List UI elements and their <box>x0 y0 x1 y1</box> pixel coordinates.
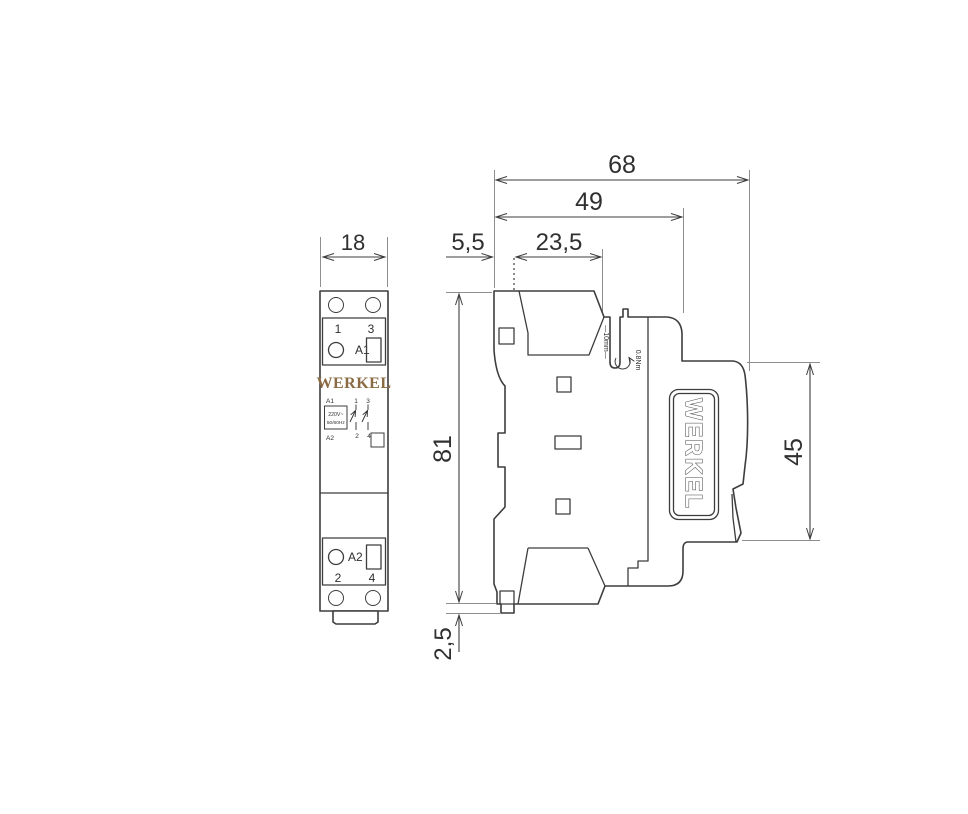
strip-length-marking: —10mm— <box>602 325 609 358</box>
terminal-label-3: 3 <box>368 322 375 336</box>
terminal-label-1: 1 <box>335 322 342 336</box>
dim-label-18: 18 <box>341 230 365 255</box>
schematic-pole2-label: 2 <box>355 433 359 440</box>
dim-label-55: 5,5 <box>451 229 484 256</box>
coil-voltage: 220V~ <box>328 412 343 418</box>
coil-label-a1: A1 <box>355 343 370 357</box>
terminal-label-2: 2 <box>335 571 342 585</box>
dim-label-49: 49 <box>575 188 603 216</box>
coil-label-a2: A2 <box>348 550 363 564</box>
dim-rail-45: 45 <box>742 363 820 541</box>
din-clip-tab <box>333 611 378 624</box>
contactor-dimension-drawing: 18 1 3 A1 WERKEL A1 220V~ 50/60Hz A2 1 3 <box>0 0 968 814</box>
front-view: 18 1 3 A1 WERKEL A1 220V~ 50/60Hz A2 1 3 <box>316 230 391 624</box>
module-side-outline <box>494 291 748 613</box>
dim-height-81: 81 <box>429 293 496 604</box>
dim-label-235: 23,5 <box>536 229 583 256</box>
dim-label-68: 68 <box>608 151 636 179</box>
dim-label-81: 81 <box>429 435 457 463</box>
dim-clip-25: 2,5 <box>430 614 500 661</box>
dim-width-18: 18 <box>321 230 388 287</box>
torque-marking: 0.8Nm <box>634 350 641 371</box>
schematic-a2-label: A2 <box>326 435 334 442</box>
werkel-brand-text: WERKEL <box>316 375 391 392</box>
dim-label-45: 45 <box>780 438 808 466</box>
terminal-label-4: 4 <box>369 571 376 585</box>
schematic-pole3-label: 3 <box>366 398 370 405</box>
side-view: 68 49 5,5 23,5 81 2,5 <box>429 151 820 661</box>
werkel-badge-text: WERKEL <box>681 398 707 510</box>
dim-offset-55: 5,5 <box>446 229 493 257</box>
coil-frequency: 50/60Hz <box>327 420 345 426</box>
technical-drawing-canvas: 18 1 3 A1 WERKEL A1 220V~ 50/60Hz A2 1 3 <box>0 0 968 814</box>
dim-label-25: 2,5 <box>430 627 457 660</box>
schematic-pole1-label: 1 <box>354 398 358 405</box>
schematic-a1-label: A1 <box>326 398 334 405</box>
